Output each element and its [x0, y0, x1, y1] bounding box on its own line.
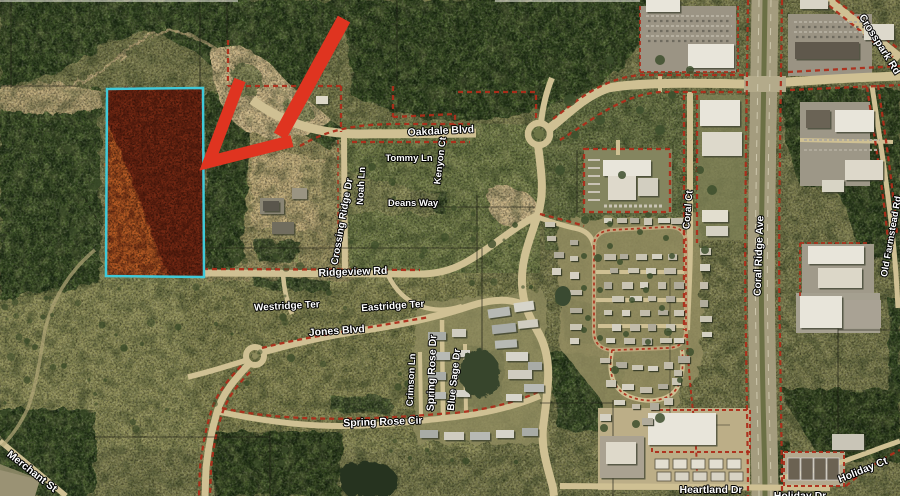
svg-text:Noah Ln: Noah Ln: [355, 166, 368, 205]
svg-text:Heartland Dr: Heartland Dr: [679, 484, 742, 496]
svg-text:Tommy Ln: Tommy Ln: [385, 153, 433, 164]
svg-text:Ridgeview Rd: Ridgeview Rd: [318, 265, 387, 279]
svg-text:Holiday Dr: Holiday Dr: [774, 490, 827, 496]
svg-text:Deans Way: Deans Way: [388, 198, 439, 209]
